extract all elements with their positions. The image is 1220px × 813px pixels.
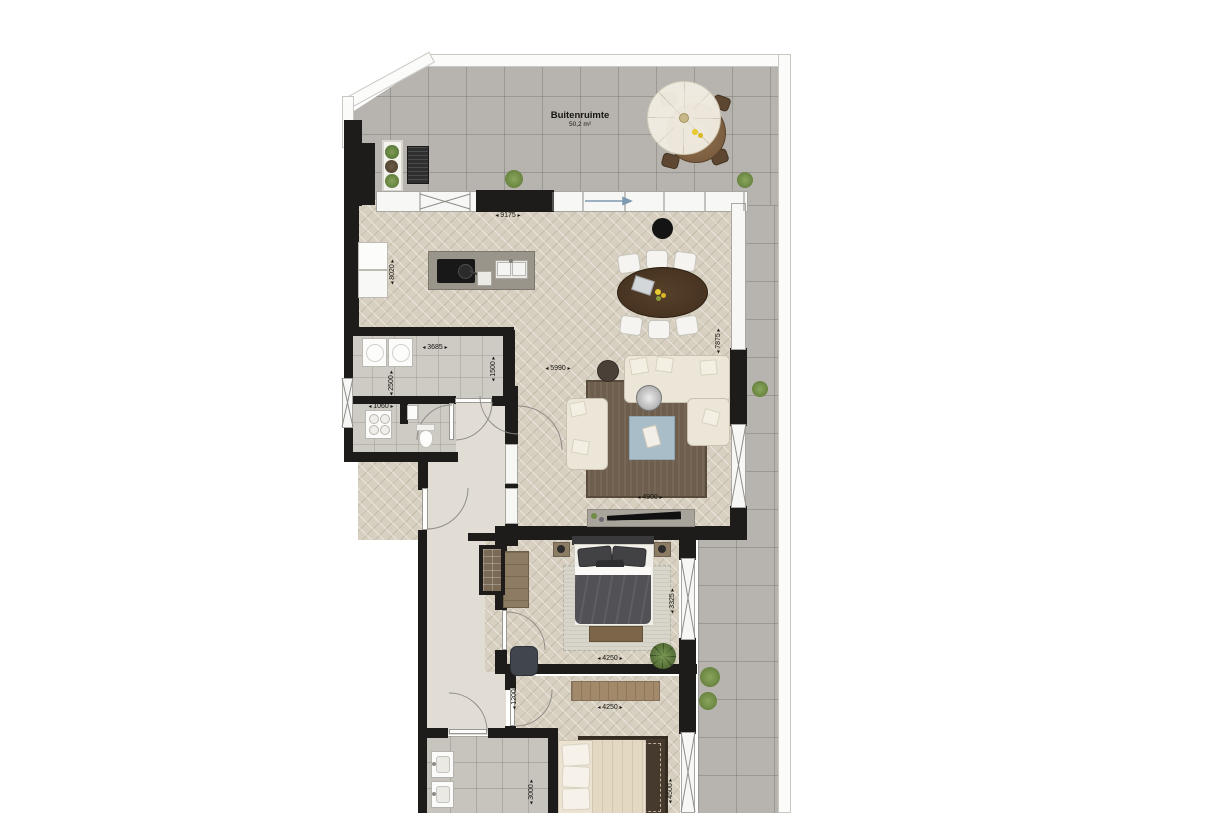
glass-door: [505, 444, 518, 484]
facade-glazing: [376, 191, 748, 212]
nightstand-lamp: [658, 545, 666, 553]
wall: [344, 120, 362, 206]
bed-bench: [589, 626, 643, 642]
door-leaf-toilet: [449, 403, 454, 440]
door-leaf-storage: [455, 398, 492, 403]
window: [681, 558, 695, 640]
washer-door: [366, 344, 384, 362]
dimension-label: 3685: [410, 343, 460, 353]
wall: [344, 200, 359, 334]
window: [731, 203, 746, 350]
dimension-label: 2500: [387, 358, 397, 408]
dimension-label: 4250: [584, 703, 636, 713]
dimension-label: 8020: [388, 247, 398, 297]
planter-plant: [385, 145, 399, 159]
toilet-bowl: [419, 430, 433, 448]
basin-faucet: [432, 762, 436, 766]
hall-floor: [456, 399, 507, 462]
tech-knob: [380, 425, 390, 435]
wall: [694, 526, 747, 540]
side-table-dark: [597, 360, 619, 382]
dimension-label: 1200: [510, 672, 520, 722]
shelf-unit: [483, 549, 501, 591]
wardrobe: [503, 551, 529, 608]
bed2-duvet: [592, 740, 644, 813]
dimension-label: 9175: [480, 211, 536, 221]
toilet-washbasin: [407, 405, 418, 420]
kitchen-tall-cabinet: [358, 270, 388, 298]
washbasin-bowl: [436, 756, 450, 773]
facade-solid-panel: [476, 190, 554, 212]
bed2-pillow: [561, 765, 590, 788]
window: [342, 378, 353, 428]
bed2-pillow: [561, 743, 590, 767]
floor-plan: Buitenruimte 50,2 m²: [0, 0, 1220, 813]
wall: [730, 348, 747, 426]
sink-basin: [497, 262, 511, 276]
dimension-label: 3000: [527, 767, 537, 813]
dimension-label: 4900: [624, 493, 676, 503]
tech-knob: [369, 414, 379, 424]
terrace-bush: [699, 692, 717, 710]
console-decor: [599, 517, 604, 522]
wall: [424, 728, 448, 738]
wall: [679, 540, 696, 560]
bbq-grill: [407, 146, 429, 184]
palm-plant: [650, 643, 676, 669]
glass-door: [505, 488, 518, 524]
dimension-label: 4500: [666, 766, 676, 813]
dining-chair: [648, 320, 670, 339]
terrace-bush: [752, 381, 768, 397]
wall: [418, 460, 428, 490]
dining-chair: [619, 315, 643, 337]
tech-knob: [380, 414, 390, 424]
parasol-pole: [679, 113, 689, 123]
terrace-curb-right: [778, 54, 791, 813]
window: [731, 424, 746, 508]
side-table-metal: [636, 385, 662, 411]
planter-plant: [385, 160, 398, 173]
wall: [548, 728, 558, 813]
bed1-duvet: [575, 575, 651, 624]
terrace-bush: [505, 170, 523, 188]
wall: [468, 533, 496, 541]
terrace-bush: [700, 667, 720, 687]
sofa-cushion: [629, 357, 650, 376]
dimension-label: 7875: [714, 316, 724, 366]
wall: [418, 530, 427, 813]
terrace-area-label: 50,2 m²: [540, 121, 620, 128]
table-flowers: [661, 293, 666, 298]
wall: [344, 334, 353, 380]
sofa-cushion: [655, 356, 674, 373]
nightstand-lamp: [557, 545, 565, 553]
dimension-label: 1060: [358, 402, 404, 412]
kitchen-tall-cabinet: [358, 242, 388, 270]
terrace-label: Buitenruimte: [540, 110, 620, 121]
sideboard: [571, 681, 660, 701]
sink-faucet: [509, 259, 513, 263]
kitchen-small-appliance: [477, 271, 492, 286]
terrace-bush: [737, 172, 753, 188]
door-leaf-bedroom1: [502, 610, 507, 650]
wall: [348, 327, 514, 336]
dimension-label: 3325: [668, 576, 678, 626]
wall: [679, 638, 696, 734]
bed2-pillow: [562, 788, 591, 811]
wall: [488, 728, 550, 738]
dimension-label: 4250: [584, 654, 636, 664]
door-leaf-entry: [422, 488, 428, 530]
wall: [344, 452, 458, 462]
terrace-curb-top: [424, 54, 780, 67]
sofa-cushion: [571, 439, 590, 456]
planter-plant: [385, 174, 399, 188]
basin-faucet: [432, 792, 436, 796]
table-flowers: [656, 296, 661, 301]
pendant-light: [652, 218, 673, 239]
table-flowers: [698, 133, 703, 138]
wall: [362, 143, 375, 205]
door-leaf-bathroom: [449, 729, 487, 734]
window: [681, 732, 695, 813]
dining-chair: [675, 315, 699, 337]
dimension-label: 5990: [532, 364, 584, 374]
tech-knob: [369, 425, 379, 435]
washbasin-bowl: [436, 786, 450, 803]
dimension-label: 1500: [489, 344, 499, 394]
console-plant: [591, 513, 597, 519]
sink-basin: [512, 262, 526, 276]
